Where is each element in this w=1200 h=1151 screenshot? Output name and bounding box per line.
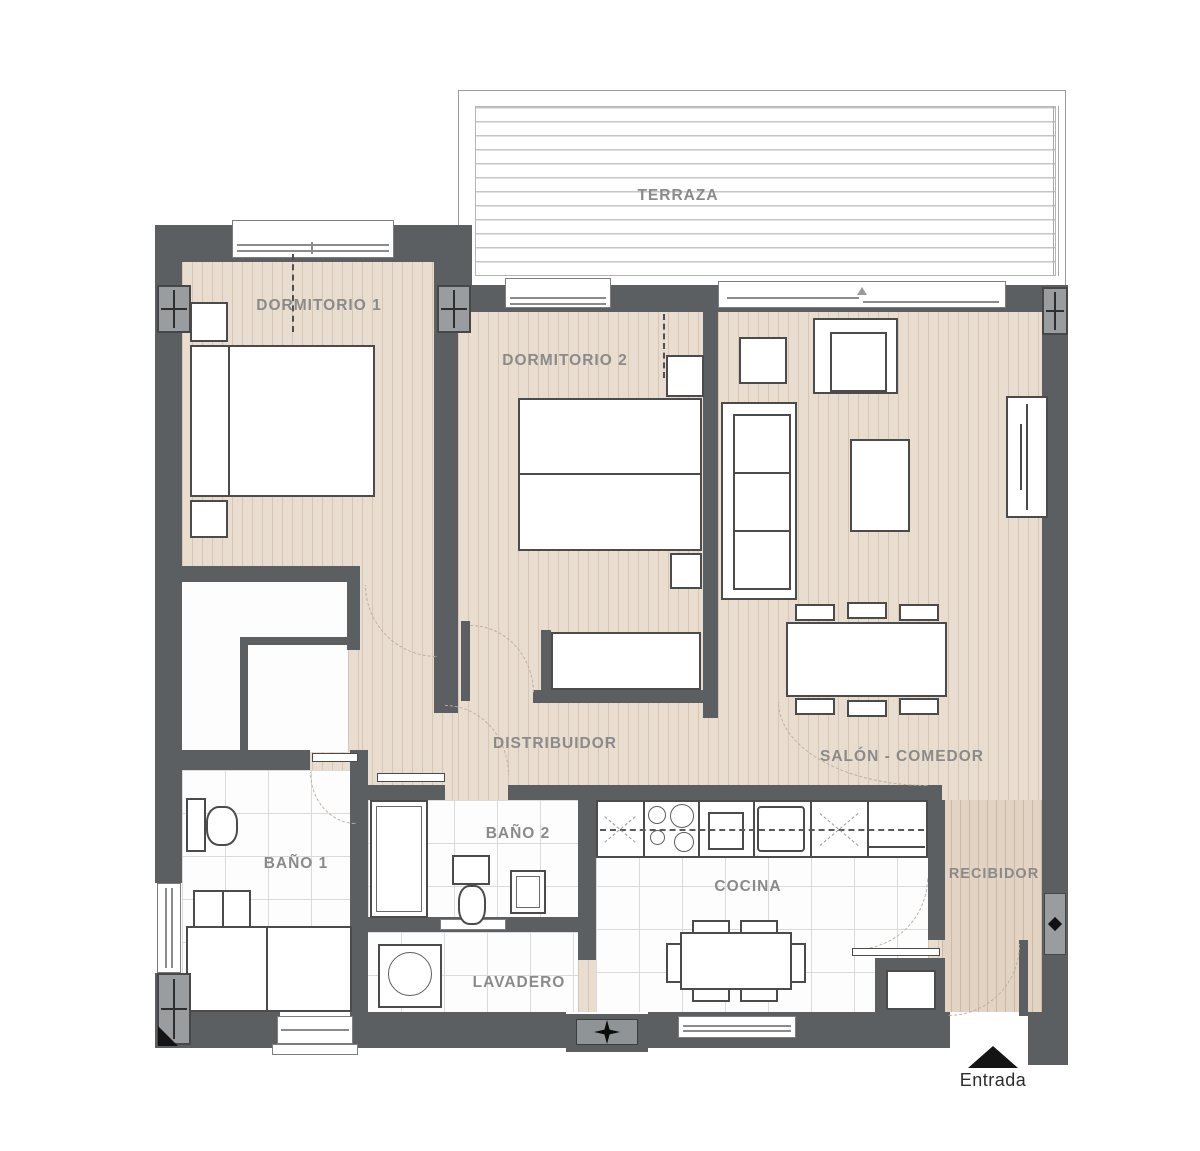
wall-closet-thin-v xyxy=(240,637,248,755)
window-lavadero-bottom xyxy=(277,1016,353,1044)
bano1-shower-line xyxy=(266,928,268,1010)
dining-chair-1 xyxy=(795,604,835,621)
label-dormitorio-1: DORMITORIO 1 xyxy=(256,297,381,315)
label-terraza: TERRAZA xyxy=(637,187,718,205)
hob-burner-4 xyxy=(674,832,694,852)
dorm1-nightstand-bottom xyxy=(190,500,228,538)
bano2-toilet-bowl xyxy=(458,885,486,925)
dining-chair-2 xyxy=(847,602,887,619)
dorm2-nightstand-top xyxy=(666,355,704,397)
kitchen-table xyxy=(680,932,792,990)
wall-bottom-entry-corner xyxy=(1028,1012,1068,1065)
dining-chair-5 xyxy=(847,700,887,717)
dining-table xyxy=(786,622,947,697)
bano1-shower xyxy=(186,926,352,1012)
bano1-toilet-tank xyxy=(186,798,206,852)
window-dormitorio-2 xyxy=(505,278,611,308)
wall-bottom-2 xyxy=(350,1012,566,1048)
wall-cocina-top xyxy=(596,785,942,800)
kitchen-chair-top-1 xyxy=(692,920,730,934)
bano2-toilet-tank xyxy=(452,855,490,885)
window-dormitorio-1 xyxy=(232,220,394,258)
wall-closet-right xyxy=(347,578,360,650)
label-bano-1: BAÑO 1 xyxy=(264,855,329,873)
dorm1-bed xyxy=(190,345,375,497)
bano1-toilet-bowl xyxy=(206,806,238,846)
wall-closet-thin-h xyxy=(240,637,347,645)
wall-lavadero-cocina xyxy=(578,800,596,960)
counter-return-line xyxy=(869,846,925,848)
kitchen-chair-bottom-2 xyxy=(740,988,778,1002)
switch-line-dorm1 xyxy=(292,254,294,332)
label-dormitorio-2: DORMITORIO 2 xyxy=(502,352,627,370)
door-leaf-dormitorio-2 xyxy=(461,621,470,701)
kitchen-chair-right xyxy=(790,943,806,983)
dorm2-bed-split-line xyxy=(520,473,700,475)
column-top-left xyxy=(157,285,191,333)
dining-chair-4 xyxy=(795,698,835,715)
window-lavadero-sill xyxy=(272,1044,358,1055)
label-cocina: COCINA xyxy=(714,878,781,896)
label-recibidor: RECIBIDOR xyxy=(949,866,1039,882)
salon-coffee-table xyxy=(850,439,910,532)
dining-chair-3 xyxy=(899,604,939,621)
wall-cocina-recibidor xyxy=(928,800,945,940)
dining-chair-6 xyxy=(899,698,939,715)
cabinet-x-2 xyxy=(814,806,864,852)
cabinet-x-1 xyxy=(600,806,640,852)
wall-bano1-top xyxy=(155,750,310,770)
entrance-label: Entrada xyxy=(960,1070,1027,1091)
label-bano-2: BAÑO 2 xyxy=(486,825,551,843)
hob-burner-3 xyxy=(650,830,665,845)
wall-bano2-top-left xyxy=(358,785,445,800)
dorm2-dresser xyxy=(551,632,701,690)
alcove-cabinet xyxy=(886,970,936,1010)
vent-block xyxy=(566,1014,648,1052)
overhead-cabinet-dash xyxy=(600,829,924,831)
column-top-right xyxy=(1042,287,1068,335)
label-distribuidor: DISTRIBUIDOR xyxy=(493,735,617,753)
salon-tv xyxy=(830,332,887,392)
door-leaf-entrada xyxy=(1019,940,1028,1016)
recibidor-shelf xyxy=(852,948,940,956)
bano2-shower-tray xyxy=(376,806,422,912)
wall-bano2-top-right xyxy=(508,785,596,800)
sofa-cushion-line-2 xyxy=(735,530,789,532)
column-top-mid xyxy=(437,285,471,333)
sofa-cushion-line-1 xyxy=(735,472,789,474)
sideboard-line-2 xyxy=(1020,424,1022,490)
room-closet-area xyxy=(182,582,348,752)
dorm1-nightstand-top xyxy=(190,302,228,342)
kitchen-chair-left xyxy=(666,943,682,983)
room-terraza xyxy=(458,90,1066,290)
kitchen-chair-bottom-1 xyxy=(692,988,730,1002)
label-salon-comedor: SALÓN - COMEDOR xyxy=(820,748,984,766)
terrace-railing xyxy=(1053,106,1059,276)
door-panel-right-wall xyxy=(1044,893,1066,955)
salon-armchair xyxy=(739,337,787,384)
window-left-bano1 xyxy=(157,883,181,973)
sideboard-line-1 xyxy=(1026,404,1028,510)
floor-plan: TERRAZA DORMITORIO 1 DORMITORIO 2 DISTRI… xyxy=(0,0,1200,1151)
terrace-decking-pattern xyxy=(475,106,1056,276)
label-lavadero: LAVADERO xyxy=(473,974,566,992)
hob-burner-2 xyxy=(670,804,694,828)
door-leaf-bano-1 xyxy=(312,753,358,762)
wall-closet-top xyxy=(182,566,360,582)
wall-dorm2-salon xyxy=(703,312,718,718)
bano1-sink-line xyxy=(222,892,224,926)
hob-burner-1 xyxy=(648,806,666,824)
entrance-arrow-icon xyxy=(968,1046,1018,1068)
window-salon-slider xyxy=(718,281,1006,308)
door-leaf-bano-2 xyxy=(377,773,445,782)
washing-machine-drum xyxy=(388,952,432,996)
bano2-sink-basin xyxy=(516,876,540,908)
dorm1-bed-headboard-line xyxy=(228,347,230,495)
dorm2-nightstand-bottom xyxy=(670,553,702,589)
kitchen-chair-top-2 xyxy=(740,920,778,934)
window-cocina-bottom xyxy=(678,1016,796,1038)
kitchen-appliance xyxy=(708,812,744,850)
wall-dorm2-bottom xyxy=(533,690,718,703)
salon-sofa-cushions xyxy=(733,414,791,590)
switch-line-dorm2 xyxy=(663,314,665,378)
